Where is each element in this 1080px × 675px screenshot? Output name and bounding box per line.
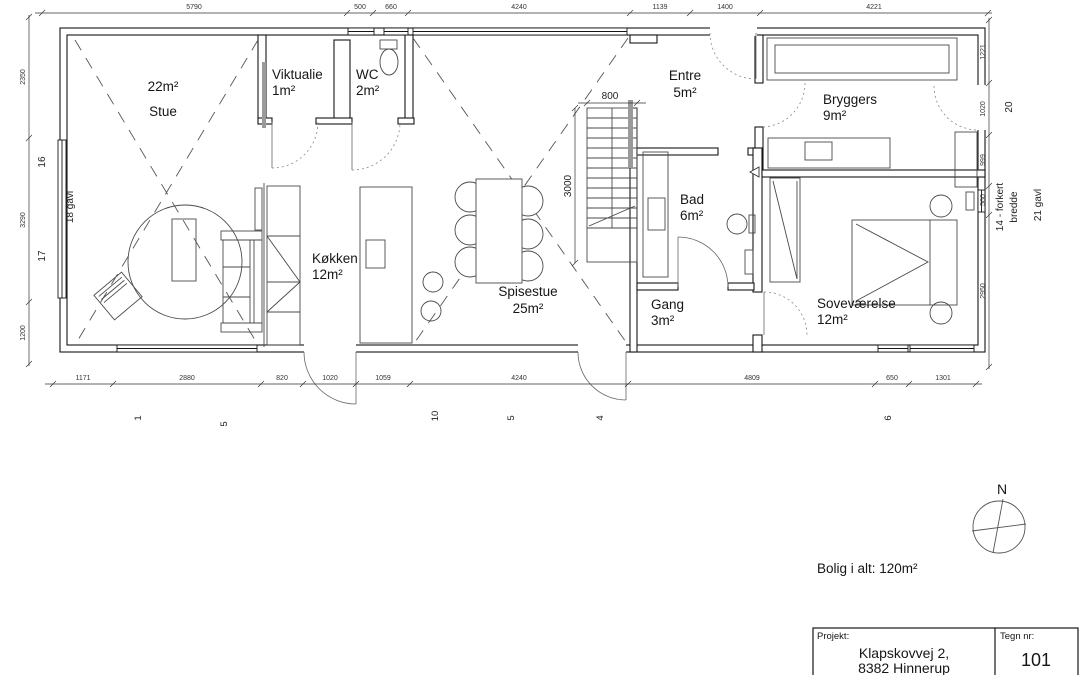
mark-20: 20 <box>1004 101 1015 113</box>
room-label-spisestue: Spisestue <box>498 284 557 299</box>
dim-left-1: 2350 <box>20 69 27 85</box>
room-label-entre-area: 5m² <box>673 85 697 100</box>
mark-pos-5: 4 <box>595 415 606 420</box>
room-label-gang: Gang <box>651 297 684 312</box>
dim-right-1: 1221 <box>980 44 987 60</box>
mark-note-right-line2: bredde <box>1009 191 1020 223</box>
dim-top-7: 4221 <box>866 4 882 11</box>
sliding-door-rail <box>262 62 266 128</box>
mark-gavl-left: 18 gavl <box>65 191 76 223</box>
room-label-gang-area: 3m² <box>651 313 675 328</box>
mark-pos-1: 1 <box>133 415 144 420</box>
dim-right-4: 560 <box>980 194 987 206</box>
drawing-no-value: 101 <box>1021 650 1051 670</box>
door-exterior-main <box>578 352 626 400</box>
dim-chain-bottom: 1171 2880 820 1020 1059 4240 4809 650 13… <box>45 375 982 387</box>
room-label-viktualie: Viktualie <box>272 67 323 82</box>
north-label: N <box>997 481 1007 497</box>
mark-note-right-line1: 14 - forkert <box>995 183 1006 232</box>
dim-bottom-7: 4809 <box>744 375 760 382</box>
room-label-wc-area: 2m² <box>356 83 380 98</box>
dim-stair-width: 800 <box>602 91 619 102</box>
dining-table <box>476 179 522 283</box>
dim-top-4: 4240 <box>511 4 527 11</box>
room-label-bad: Bad <box>680 192 704 207</box>
mark-gavl-right: 21 gavl <box>1033 189 1044 221</box>
dim-bottom-6: 4240 <box>511 375 527 382</box>
drawing-no-label: Tegn nr: <box>1000 631 1034 642</box>
project-label: Projekt: <box>817 631 849 642</box>
mark-pos-2: 5 <box>219 421 230 426</box>
total-area-label: Bolig i alt: 120m² <box>817 561 918 576</box>
dim-bottom-9: 1301 <box>935 375 951 382</box>
compass-ns-line <box>993 499 1003 553</box>
room-label-stue: Stue <box>149 104 177 119</box>
title-block: Projekt: Klapskovvej 2, 8382 Hinnerup Te… <box>813 628 1078 675</box>
project-address-line2: 8382 Hinnerup <box>858 660 950 675</box>
north-arrow: N <box>972 481 1026 553</box>
dim-left-3: 1200 <box>20 325 27 341</box>
dim-top-5: 1139 <box>652 4 667 11</box>
room-label-sovevaerelse: Soveværelse <box>817 296 896 311</box>
room-label-kokken-area: 12m² <box>312 267 343 282</box>
mark-pos-4: 5 <box>506 415 517 420</box>
dim-chain-left: 2350 3290 1200 <box>20 14 32 367</box>
dim-stair-length: 3000 <box>563 174 574 197</box>
mark-16: 16 <box>37 156 48 168</box>
room-label-kokken: Køkken <box>312 251 358 266</box>
dining-furniture <box>455 179 543 283</box>
room-label-sovevaerelse-area: 12m² <box>817 312 848 327</box>
room-label-bryggers: Bryggers <box>823 92 877 107</box>
room-label-stue-area: 22m² <box>148 79 179 94</box>
dim-chain-top: 5790 500 660 4240 1139 1400 4221 <box>35 4 992 16</box>
dim-top-1: 5790 <box>186 4 202 11</box>
dim-bottom-2: 2880 <box>179 375 195 382</box>
compass-ew-line <box>972 524 1026 531</box>
room-label-entre: Entre <box>669 68 701 83</box>
dim-right-3: 999 <box>980 154 987 166</box>
room-label-wc: WC <box>356 67 379 82</box>
compass-circle-icon <box>973 501 1025 553</box>
dim-bottom-1: 1171 <box>75 375 90 382</box>
room-label-bryggers-area: 9m² <box>823 108 847 123</box>
dim-top-2: 500 <box>354 4 366 11</box>
stair-handrail <box>628 100 633 168</box>
dim-top-3: 660 <box>385 4 397 11</box>
dim-left-2: 3290 <box>20 212 27 228</box>
mark-pos-6: 6 <box>883 415 894 420</box>
floor-plan-canvas: 22m² Stue Viktualie 1m² WC 2m² Entre 5m²… <box>0 0 1080 675</box>
room-label-bad-area: 6m² <box>680 208 704 223</box>
dim-bottom-3: 820 <box>276 375 288 382</box>
mark-17: 17 <box>37 250 48 262</box>
dim-bottom-4: 1020 <box>322 375 338 382</box>
project-address-line1: Klapskovvej 2, <box>859 645 949 661</box>
mark-pos-3: 10 <box>430 411 441 422</box>
dim-bottom-8: 650 <box>886 375 898 382</box>
dim-right-2: 1020 <box>980 101 987 117</box>
room-label-viktualie-area: 1m² <box>272 83 296 98</box>
dim-bottom-5: 1059 <box>375 375 391 382</box>
dim-top-6: 1400 <box>717 4 733 11</box>
dim-right-5: 2950 <box>980 283 987 299</box>
room-label-spisestue-area: 25m² <box>513 301 544 316</box>
